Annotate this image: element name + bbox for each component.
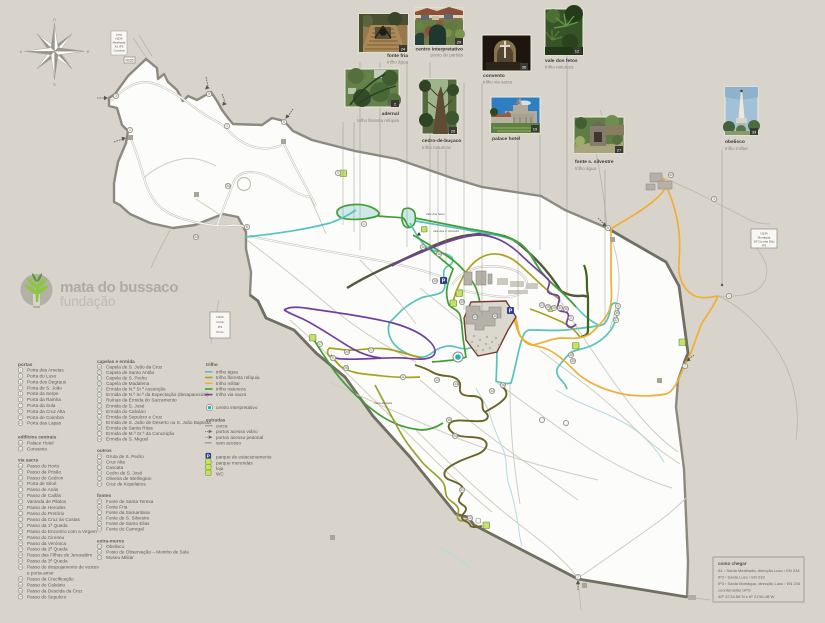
- svg-text:36: 36: [615, 311, 619, 315]
- svg-text:WC: WC: [216, 472, 224, 477]
- svg-text:12: 12: [575, 49, 580, 54]
- svg-text:Cascata: Cascata: [106, 465, 124, 470]
- svg-text:via sacra: via sacra: [18, 458, 38, 463]
- svg-text:25: 25: [345, 350, 349, 354]
- svg-text:26: 26: [344, 366, 348, 370]
- svg-text:Ermida do Calvário: Ermida do Calvário: [106, 409, 146, 414]
- svg-text:Porta da Rainha: Porta da Rainha: [27, 397, 61, 402]
- svg-text:10: 10: [421, 245, 425, 249]
- svg-text:Porta de Coimbra: Porta de Coimbra: [27, 415, 64, 420]
- svg-text:Fonte de S. Silvestre: Fonte de S. Silvestre: [106, 515, 150, 520]
- svg-text:cedro-de-buçaco: cedro-de-buçaco: [422, 138, 461, 144]
- svg-text:1: 1: [226, 124, 228, 128]
- svg-text:Porta de S. João: Porta de S. João: [27, 385, 62, 390]
- svg-text:Porta da Serpe: Porta da Serpe: [27, 391, 59, 396]
- svg-text:38: 38: [569, 353, 573, 357]
- svg-text:Passo da Prisão: Passo da Prisão: [27, 469, 62, 474]
- svg-text:29: 29: [552, 306, 556, 310]
- svg-text:trilho natureza: trilho natureza: [545, 65, 574, 70]
- svg-text:fontes: fontes: [97, 493, 111, 498]
- svg-text:Passo da 3ª Queda: Passo da 3ª Queda: [27, 559, 68, 564]
- svg-text:Cruz Alta: Cruz Alta: [106, 459, 125, 464]
- svg-text:mata almiada: mata almiada: [374, 401, 392, 405]
- svg-text:21: 21: [460, 488, 464, 492]
- svg-text:Porta da Sula: Porta da Sula: [27, 403, 56, 408]
- svg-text:16: 16: [501, 383, 505, 387]
- svg-text:Passo da Cruz às Costas: Passo da Cruz às Costas: [27, 517, 81, 522]
- svg-text:trilho água: trilho água: [387, 60, 409, 65]
- svg-text:Passo de Anás: Passo de Anás: [27, 487, 59, 492]
- svg-text:13: 13: [454, 382, 458, 386]
- svg-text:convento: convento: [483, 73, 505, 79]
- svg-text:e porta-amor: e porta-amor: [27, 571, 54, 576]
- svg-text:Passo do Sepulcro: Passo do Sepulcro: [27, 594, 67, 599]
- svg-text:trilho via sacra: trilho via sacra: [483, 80, 513, 85]
- svg-text:14: 14: [490, 389, 494, 393]
- svg-text:estradas: estradas: [206, 417, 226, 422]
- svg-text:3: 3: [713, 197, 715, 201]
- svg-text:Palace Hotel: Palace Hotel: [27, 440, 54, 445]
- svg-text:27: 27: [369, 348, 373, 352]
- svg-text:Fonte da Samaritana: Fonte da Samaritana: [106, 510, 150, 515]
- svg-text:Passo da Crucificação: Passo da Crucificação: [27, 577, 74, 582]
- svg-text:loja: loja: [216, 466, 224, 471]
- svg-text:Posto de Observação – Moinho d: Posto de Observação – Moinho de Sula: [106, 549, 189, 554]
- svg-text:40: 40: [669, 173, 673, 177]
- svg-text:trilho floresta relíquia: trilho floresta relíquia: [357, 118, 399, 123]
- svg-text:Passo do Cireneu: Passo do Cireneu: [27, 535, 65, 540]
- svg-text:36: 36: [522, 65, 527, 70]
- svg-text:vale dos fetos: vale dos fetos: [545, 58, 578, 64]
- svg-text:fonte fria: fonte fria: [387, 53, 408, 59]
- svg-text:Ermida de Sepulcro e Cruz: Ermida de Sepulcro e Cruz: [106, 414, 163, 419]
- svg-text:Coimbra: Coimbra: [114, 49, 125, 53]
- svg-text:parque de estacionamento: parque de estacionamento: [216, 455, 272, 460]
- svg-text:22: 22: [468, 516, 472, 520]
- svg-text:20: 20: [451, 129, 456, 134]
- svg-text:35: 35: [564, 307, 568, 311]
- svg-text:Ermida de S. João de Deserto o: Ermida de S. João de Deserto ou S. João …: [106, 420, 211, 425]
- svg-text:extra-muros: extra-muros: [97, 538, 124, 543]
- svg-text:IP3: IP3: [762, 244, 767, 248]
- svg-text:5: 5: [332, 356, 334, 360]
- svg-text:trilho via sacra: trilho via sacra: [216, 392, 247, 397]
- svg-text:vale dos fetos: vale dos fetos: [426, 212, 445, 216]
- svg-text:Porta das Ameias: Porta das Ameias: [27, 368, 64, 373]
- svg-text:N234: N234: [216, 315, 224, 319]
- svg-text:20: 20: [453, 434, 457, 438]
- svg-text:coordenadas GPS: coordenadas GPS: [718, 588, 751, 593]
- svg-text:P: P: [509, 309, 513, 315]
- svg-text:parque merendas: parque merendas: [216, 460, 253, 465]
- svg-text:Capela de Madalena: Capela de Madalena: [106, 381, 150, 386]
- svg-text:1: 1: [728, 294, 730, 298]
- svg-text:A1 › Saída Mealhada, direcção: A1 › Saída Mealhada, direcção Luso › EN …: [718, 568, 800, 573]
- svg-text:23: 23: [540, 303, 544, 307]
- svg-text:29: 29: [457, 40, 462, 45]
- svg-text:Cedro de S. José: Cedro de S. José: [106, 471, 143, 476]
- svg-text:39: 39: [571, 359, 575, 363]
- svg-text:P: P: [207, 454, 210, 459]
- svg-text:8: 8: [246, 225, 248, 229]
- svg-text:Passo de Herodes: Passo de Herodes: [27, 505, 66, 510]
- svg-text:24: 24: [401, 47, 406, 52]
- svg-text:6: 6: [607, 226, 609, 230]
- svg-text:2: 2: [570, 316, 572, 320]
- svg-text:Convento: Convento: [27, 446, 47, 451]
- svg-text:Porta das Lapas: Porta das Lapas: [27, 421, 62, 426]
- svg-text:trilho floresta relíquia: trilho floresta relíquia: [216, 375, 260, 380]
- svg-text:portos acesso pedonal: portos acesso pedonal: [216, 435, 263, 440]
- svg-text:9: 9: [337, 171, 339, 175]
- svg-text:19: 19: [533, 127, 538, 132]
- svg-text:Passo do Calvário: Passo do Calvário: [27, 582, 65, 587]
- svg-text:3: 3: [115, 94, 117, 98]
- svg-text:24: 24: [226, 184, 230, 188]
- svg-text:trilho água: trilho água: [216, 369, 238, 374]
- svg-text:capelas e ermida: capelas e ermida: [97, 359, 135, 364]
- svg-text:7: 7: [684, 364, 686, 368]
- svg-text:Ermida de M.ª Sr.ª da Conceiçã: Ermida de M.ª Sr.ª da Conceição: [106, 431, 175, 436]
- svg-text:Museu Militar: Museu Militar: [106, 555, 134, 560]
- svg-text:Porto: Porto: [216, 330, 224, 334]
- svg-text:palace hotel: palace hotel: [492, 136, 521, 142]
- svg-text:Passo do despojamento de veste: Passo do despojamento de vestes: [27, 565, 99, 570]
- svg-text:trilho militar: trilho militar: [216, 381, 240, 386]
- svg-text:12: 12: [435, 378, 439, 382]
- svg-text:Capela de S. João da Cruz: Capela de S. João da Cruz: [106, 364, 163, 369]
- svg-text:1: 1: [129, 128, 131, 132]
- svg-text:Passo do Encontro com a Virgem: Passo do Encontro com a Virgem: [27, 529, 97, 534]
- svg-text:Ermida de S. Miguel: Ermida de S. Miguel: [106, 437, 148, 442]
- svg-text:IP3 › Saída Luso › EN 233: IP3 › Saída Luso › EN 233: [718, 575, 765, 580]
- svg-text:sem acesso: sem acesso: [216, 441, 241, 446]
- svg-text:trilho natureza: trilho natureza: [422, 145, 451, 150]
- svg-text:trilho natureza: trilho natureza: [216, 387, 246, 392]
- svg-text:IP3 › Saída Mortágua, direcção: IP3 › Saída Mortágua, direcção Luso › EN…: [718, 581, 801, 586]
- svg-text:5: 5: [283, 120, 285, 124]
- svg-text:trilho: trilho: [206, 362, 218, 367]
- svg-text:31: 31: [558, 306, 562, 310]
- svg-text:portos acesso viário: portos acesso viário: [216, 429, 258, 434]
- svg-text:33: 33: [473, 315, 477, 319]
- svg-text:15: 15: [447, 418, 451, 422]
- svg-text:Passo da Descida da Cruz: Passo da Descida da Cruz: [27, 588, 83, 593]
- svg-text:fonte s. silvestre: fonte s. silvestre: [575, 159, 614, 165]
- svg-text:Obelisco: Obelisco: [106, 544, 125, 549]
- svg-text:Varanda de Pilatos: Varanda de Pilatos: [27, 499, 67, 504]
- svg-text:4: 4: [617, 304, 619, 308]
- svg-text:1: 1: [363, 222, 365, 226]
- svg-text:edifícios centrais: edifícios centrais: [18, 435, 57, 440]
- svg-text:40º 22'34.56''N e 8º 21'56.48': 40º 22'34.56''N e 8º 21'56.48''W: [718, 594, 775, 599]
- svg-text:19: 19: [433, 279, 437, 283]
- svg-text:Porta de Siloé: Porta de Siloé: [27, 481, 57, 486]
- svg-text:17: 17: [318, 342, 322, 346]
- svg-text:Fonte de Santo Elias: Fonte de Santo Elias: [106, 521, 150, 526]
- svg-text:Ermida de Santa Ritas: Ermida de Santa Ritas: [106, 426, 154, 431]
- svg-text:obelisco: obelisco: [725, 139, 745, 145]
- svg-text:32: 32: [460, 300, 464, 304]
- svg-text:P: P: [442, 279, 446, 285]
- svg-text:Ermida de N.ª Sr.ª Assunção: Ermida de N.ª Sr.ª Assunção: [106, 387, 166, 392]
- svg-text:Passo da Verónica: Passo da Verónica: [27, 541, 66, 546]
- svg-text:Fonte Fria: Fonte Fria: [106, 504, 128, 509]
- svg-text:Ermida de N.ª Sr.ª da Expectaç: Ermida de N.ª Sr.ª da Expectação (desapa…: [106, 392, 209, 397]
- svg-text:Gruta de S. Pedro: Gruta de S. Pedro: [106, 454, 144, 459]
- svg-text:30: 30: [493, 314, 497, 318]
- svg-text:Oliveira de Wellington: Oliveira de Wellington: [106, 476, 152, 481]
- svg-text:9: 9: [208, 92, 210, 96]
- svg-text:fundação: fundação: [60, 294, 116, 309]
- svg-text:Passo da 2ª Queda: Passo da 2ª Queda: [27, 547, 68, 552]
- svg-text:IP1: IP1: [218, 325, 223, 329]
- svg-text:Passo de Caifás: Passo de Caifás: [27, 493, 62, 498]
- svg-text:trilho militar: trilho militar: [725, 146, 749, 151]
- svg-text:Passo do Pretório: Passo do Pretório: [27, 511, 65, 516]
- svg-text:Passo das Filhas de Jerusalém: Passo das Filhas de Jerusalém: [27, 553, 92, 558]
- svg-text:adernal: adernal: [382, 111, 400, 117]
- svg-text:vale dos s. silvestre: vale dos s. silvestre: [433, 229, 460, 233]
- svg-text:7: 7: [577, 575, 579, 579]
- svg-text:11: 11: [401, 375, 405, 379]
- svg-text:N235: N235: [125, 59, 133, 63]
- svg-text:como chegar: como chegar: [718, 561, 747, 566]
- svg-text:portas: portas: [18, 362, 33, 367]
- svg-text:Porta da Cruz Alta: Porta da Cruz Alta: [27, 409, 65, 414]
- svg-text:Fonte do Carregal: Fonte do Carregal: [106, 527, 144, 532]
- svg-text:Cruz de Kopelaires: Cruz de Kopelaires: [106, 482, 147, 487]
- svg-text:Capela de S. Pedro: Capela de S. Pedro: [106, 376, 147, 381]
- svg-text:Fonte de Santa Teresa: Fonte de Santa Teresa: [106, 499, 154, 504]
- svg-text:28: 28: [546, 305, 550, 309]
- svg-text:Ruínas da Ermida do Sacramento: Ruínas da Ermida do Sacramento: [106, 398, 177, 403]
- svg-text:Passo do Horto: Passo do Horto: [27, 463, 60, 468]
- svg-text:Ermida de S. José: Ermida de S. José: [106, 403, 145, 408]
- svg-text:Passo da 1ª Queda: Passo da 1ª Queda: [27, 523, 68, 528]
- svg-text:Porta dos Degraus: Porta dos Degraus: [27, 379, 67, 384]
- svg-text:37: 37: [614, 318, 618, 322]
- svg-text:ponto de partida: ponto de partida: [430, 53, 463, 58]
- svg-text:outros: outros: [97, 448, 112, 453]
- svg-text:27: 27: [617, 148, 622, 153]
- svg-text:trilho água: trilho água: [575, 166, 597, 171]
- svg-text:Porta do Luso: Porta do Luso: [27, 374, 57, 379]
- svg-text:Passo do Cedron: Passo do Cedron: [27, 475, 64, 480]
- svg-text:34: 34: [194, 235, 198, 239]
- svg-text:Capela de Santo Antão: Capela de Santo Antão: [106, 370, 155, 375]
- svg-text:centro interpretativo: centro interpretativo: [216, 405, 258, 410]
- svg-text:cerca: cerca: [216, 423, 228, 428]
- svg-text:33: 33: [752, 130, 757, 135]
- svg-text:Curia: Curia: [216, 320, 224, 324]
